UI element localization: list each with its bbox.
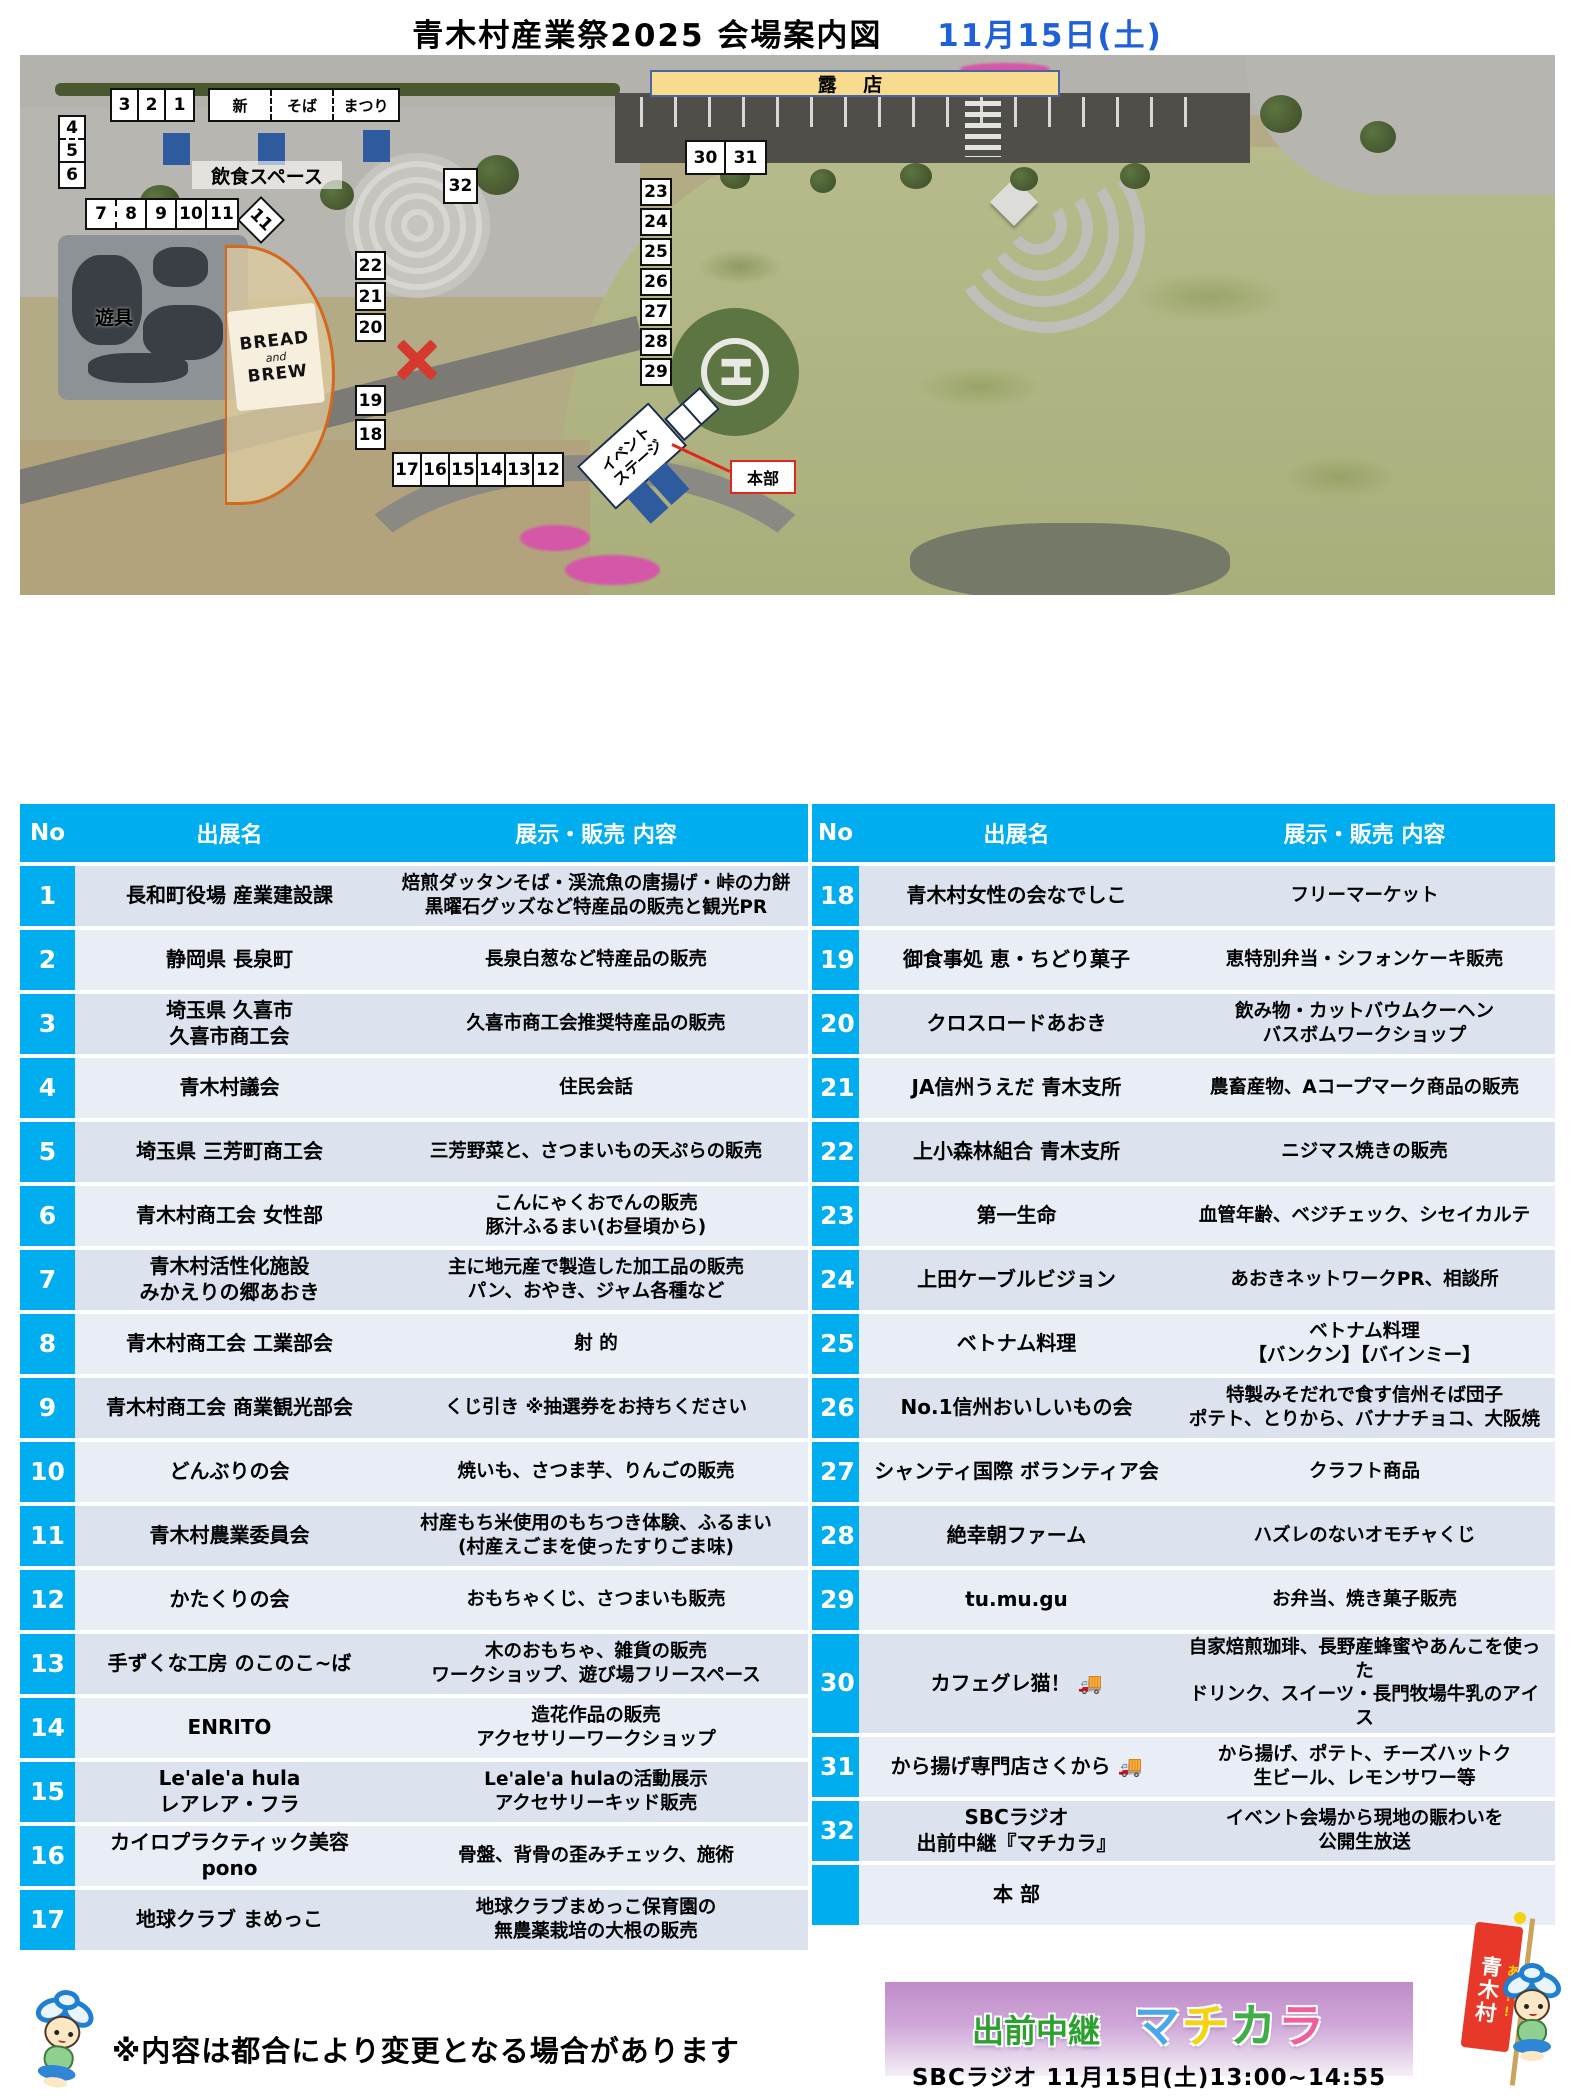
col-header-name: 出展名 [75, 804, 384, 862]
cell-exhibitor-name: 青木村商工会 女性部 [75, 1186, 384, 1246]
cell-exhibit-content: 焼いも、さつま芋、りんごの販売 [384, 1442, 808, 1502]
cell-booth-number: 26 [812, 1378, 859, 1438]
cell-exhibitor-name: 手ずくな工房 のこのこ~ば [75, 1634, 384, 1694]
cell-exhibitor-name: 静岡県 長泉町 [75, 930, 384, 990]
table-row: 21JA信州うえだ 青木支所農畜産物、Aコープマーク商品の販売 [812, 1058, 1555, 1118]
heliport-mark: H [701, 338, 769, 406]
cell-exhibit-content: 特製みそだれで食す信州そば団子 ポテト、とりから、バナナチョコ、大阪焼 [1174, 1378, 1555, 1438]
banner-title: マチカラ [1134, 1990, 1326, 2056]
cell-exhibitor-name: 青木村議会 [75, 1058, 384, 1118]
cell-booth-number: 23 [812, 1186, 859, 1246]
cell-exhibitor-name: シャンティ国際 ボランティア会 [859, 1442, 1174, 1502]
cell-booth-number: 30 [812, 1634, 859, 1733]
flower-patch [520, 525, 590, 551]
cell-exhibit-content: お弁当、焼き菓子販売 [1174, 1570, 1555, 1630]
cell-booth-number: 25 [812, 1314, 859, 1374]
cell-exhibitor-name: tu.mu.gu [859, 1570, 1174, 1630]
table-row: 28絶幸朝ファームハズレのないオモチャくじ [812, 1506, 1555, 1566]
cell-exhibit-content: こんにゃくおでんの販売 豚汁ふるまい(お昼頃から) [384, 1186, 808, 1246]
table-row: 2静岡県 長泉町長泉白葱など特産品の販売 [20, 930, 808, 990]
cell-booth-number: 24 [812, 1250, 859, 1310]
cell-booth-number: 16 [20, 1826, 75, 1886]
cell-exhibitor-name: No.1信州おいしいもの会 [859, 1378, 1174, 1438]
table-row: 15Le'ale'a hula レアレア・フラLe'ale'a hulaの活動展… [20, 1762, 808, 1822]
table-row: 18青木村女性の会なでしこフリーマーケット [812, 866, 1555, 926]
cell-exhibit-content: くじ引き ※抽選券をお持ちください [384, 1378, 808, 1438]
booth-col-4-5-6: 4 5 6 [58, 115, 86, 189]
table-row: 23第一生命血管年齢、ベジチェック、シセイカルテ [812, 1186, 1555, 1246]
cell-booth-number: 20 [812, 994, 859, 1054]
cell-booth-number: 6 [20, 1186, 75, 1246]
tree [1010, 167, 1038, 191]
col-header-content: 展示・販売 内容 [1174, 804, 1555, 862]
cell-booth-number: 28 [812, 1506, 859, 1566]
cell-exhibitor-name: クロスロードあおき [859, 994, 1174, 1054]
cell-booth-number: 32 [812, 1801, 859, 1861]
cell-exhibitor-name: Le'ale'a hula レアレア・フラ [75, 1762, 384, 1822]
cell-booth-number: 9 [20, 1378, 75, 1438]
cell-exhibitor-name: JA信州うえだ 青木支所 [859, 1058, 1174, 1118]
cell-booth-number: 21 [812, 1058, 859, 1118]
amphitheater [995, 183, 1225, 413]
cell-booth-number: 8 [20, 1314, 75, 1374]
tree [1260, 95, 1302, 133]
table-row: 24上田ケーブルビジョンあおきネットワークPR、相談所 [812, 1250, 1555, 1310]
table-row: 4青木村議会住民会話 [20, 1058, 808, 1118]
cell-booth-number: 31 [812, 1737, 859, 1797]
cell-exhibit-content: 飲み物・カットバウムクーヘン バスボムワークショップ [1174, 994, 1555, 1054]
table-row: 12かたくりの会おもちゃくじ、さつまいも販売 [20, 1570, 808, 1630]
cell-booth-number: 29 [812, 1570, 859, 1630]
table-row: 11青木村農業委員会村産もち米使用のもちつき体験、ふるまい (村産えごまを使った… [20, 1506, 808, 1566]
cell-exhibitor-name: から揚げ専門店さくから 🚚 [859, 1737, 1174, 1797]
cell-exhibit-content: フリーマーケット [1174, 866, 1555, 926]
headquarters-box: 本部 [730, 460, 796, 494]
cell-exhibit-content: 農畜産物、Aコープマーク商品の販売 [1174, 1058, 1555, 1118]
cell-booth-number: 2 [20, 930, 75, 990]
venue-map: H 3 2 1 新 そば まつり [20, 55, 1555, 595]
cell-exhibit-content: 久喜市商工会推奨特産品の販売 [384, 994, 808, 1054]
cell-booth-number [812, 1865, 859, 1925]
page-title: 青木村産業祭2025 会場案内図 11月15日(土) [0, 10, 1575, 55]
cell-booth-number: 4 [20, 1058, 75, 1118]
radio-banner: 出前中継 マチカラ SBCラジオ 11月15日(土)13:00~14:55 [885, 1982, 1413, 2076]
cell-booth-number: 1 [20, 866, 75, 926]
cell-exhibitor-name: カフェグレ猫！ 🚚 [859, 1634, 1174, 1733]
tent-marker [163, 133, 190, 165]
cell-booth-number: 5 [20, 1122, 75, 1182]
tree [475, 155, 519, 195]
cell-exhibit-content: 自家焙煎珈琲、長野産蜂蜜やあんこを使った ドリンク、スイーツ・長門牧場牛乳のアイ… [1174, 1634, 1555, 1733]
roten-banner: 露 店 [650, 70, 1060, 97]
flower-patch [565, 555, 660, 585]
table-row: 26No.1信州おいしいもの会特製みそだれで食す信州そば団子 ポテト、とりから、… [812, 1378, 1555, 1438]
pond [910, 523, 1230, 595]
table-row: 7青木村活性化施設 みかえりの郷あおき主に地元産で製造した加工品の販売 パン、お… [20, 1250, 808, 1310]
cell-exhibitor-name: 絶幸朝ファーム [859, 1506, 1174, 1566]
cell-exhibitor-name: 青木村活性化施設 みかえりの郷あおき [75, 1250, 384, 1310]
table-row: 16カイロプラクティック美容 pono骨盤、背骨の歪みチェック、施術 [20, 1826, 808, 1886]
col-header-name: 出展名 [859, 804, 1174, 862]
banner-subtitle: SBCラジオ 11月15日(土)13:00~14:55 [885, 2058, 1413, 2092]
cell-exhibit-content: 長泉白葱など特産品の販売 [384, 930, 808, 990]
tree [900, 163, 932, 189]
booth-row-17-12: 17 16 15 14 13 12 [392, 452, 564, 487]
cell-exhibit-content: ニジマス焼きの販売 [1174, 1122, 1555, 1182]
cell-exhibit-content: 村産もち米使用のもちつき体験、ふるまい (村産えごまを使ったすりごま味) [384, 1506, 808, 1566]
table-row: 13手ずくな工房 のこのこ~ば木のおもちゃ、雑貨の販売 ワークショップ、遊び場フ… [20, 1634, 808, 1694]
cell-exhibitor-name: 第一生命 [859, 1186, 1174, 1246]
cell-booth-number: 11 [20, 1506, 75, 1566]
cell-booth-number: 18 [812, 866, 859, 926]
cell-exhibit-content: クラフト商品 [1174, 1442, 1555, 1502]
cell-exhibit-content: 射 的 [384, 1314, 808, 1374]
cell-exhibitor-name: 埼玉県 三芳町商工会 [75, 1122, 384, 1182]
table-header-row: No 出展名 展示・販売 内容 [812, 804, 1555, 862]
event-date: 11月15日(土) [937, 18, 1163, 54]
banner-label: 出前中継 [972, 2006, 1100, 2052]
booth-shin-soba-matsuri: 新 そば まつり [208, 88, 400, 122]
cell-booth-number: 13 [20, 1634, 75, 1694]
table-row: 31から揚げ専門店さくから 🚚から揚げ、ポテト、チーズハットク 生ビール、レモン… [812, 1737, 1555, 1797]
table-row: 20クロスロードあおき飲み物・カットバウムクーヘン バスボムワークショップ [812, 994, 1555, 1054]
cell-booth-number: 7 [20, 1250, 75, 1310]
booth-col-23-29: 23 24 25 26 27 28 29 [640, 178, 672, 386]
cell-exhibitor-name: 青木村商工会 商業観光部会 [75, 1378, 384, 1438]
eating-space-label: 飲食スペース [192, 161, 342, 189]
table-row: 6青木村商工会 女性部こんにゃくおでんの販売 豚汁ふるまい(お昼頃から) [20, 1186, 808, 1246]
cell-exhibitor-name: 上小森林組合 青木支所 [859, 1122, 1174, 1182]
table-header-row: No 出展名 展示・販売 内容 [20, 804, 808, 862]
booth-row-3-2-1: 3 2 1 [110, 88, 195, 122]
exhibitor-table-right: No 出展名 展示・販売 内容 18青木村女性の会なでしこフリーマーケット19御… [812, 800, 1555, 1929]
cell-exhibit-content: から揚げ、ポテト、チーズハットク 生ビール、レモンサワー等 [1174, 1737, 1555, 1797]
cell-booth-number: 3 [20, 994, 75, 1054]
cell-booth-number: 27 [812, 1442, 859, 1502]
cell-exhibitor-name: ベトナム料理 [859, 1314, 1174, 1374]
tree [1120, 163, 1150, 189]
cell-booth-number: 10 [20, 1442, 75, 1502]
table-row: 5埼玉県 三芳町商工会三芳野菜と、さつまいもの天ぷらの販売 [20, 1122, 808, 1182]
tree [1360, 121, 1396, 153]
cell-exhibit-content: 造花作品の販売 アクセサリーワークショップ [384, 1698, 808, 1758]
cell-exhibit-content: 主に地元産で製造した加工品の販売 パン、おやき、ジャム各種など [384, 1250, 808, 1310]
col-header-content: 展示・販売 内容 [384, 804, 808, 862]
exhibitor-table-left: No 出展名 展示・販売 内容 1長和町役場 産業建設課焙煎ダッタンそば・渓流魚… [20, 800, 808, 1954]
table-row: 25ベトナム料理ベトナム料理 【バンクン】【バインミー】 [812, 1314, 1555, 1374]
cell-exhibitor-name: ENRITO [75, 1698, 384, 1758]
cell-exhibitor-name: SBCラジオ 出前中継『マチカラ』 [859, 1801, 1174, 1861]
cell-exhibitor-name: 青木村農業委員会 [75, 1506, 384, 1566]
booth-col-22-20: 22 21 20 [355, 251, 386, 342]
cell-exhibit-content: Le'ale'a hulaの活動展示 アクセサリーキッド販売 [384, 1762, 808, 1822]
cell-exhibit-content: ベトナム料理 【バンクン】【バインミー】 [1174, 1314, 1555, 1374]
mascot-with-flag: あっ!! 青木村 [1402, 1912, 1572, 2092]
table-row: 17地球クラブ まめっこ地球クラブまめっこ保育園の 無農薬栽培の大根の販売 [20, 1890, 808, 1950]
disclaimer-note: ※内容は都合により変更となる場合があります [112, 2028, 740, 2070]
cell-exhibit-content: おもちゃくじ、さつまいも販売 [384, 1570, 808, 1630]
table-row: 22上小森林組合 青木支所ニジマス焼きの販売 [812, 1122, 1555, 1182]
cell-booth-number: 15 [20, 1762, 75, 1822]
tent-marker [363, 130, 390, 162]
cell-exhibitor-name: 青木村女性の会なでしこ [859, 866, 1174, 926]
table-row: 3埼玉県 久喜市 久喜市商工会久喜市商工会推奨特産品の販売 [20, 994, 808, 1054]
cell-booth-number: 22 [812, 1122, 859, 1182]
cell-exhibitor-name: カイロプラクティック美容 pono [75, 1826, 384, 1886]
table-row: 9青木村商工会 商業観光部会くじ引き ※抽選券をお持ちください [20, 1378, 808, 1438]
table-row: 10どんぶりの会焼いも、さつま芋、りんごの販売 [20, 1442, 808, 1502]
cell-exhibitor-name: 上田ケーブルビジョン [859, 1250, 1174, 1310]
cell-exhibit-content: 住民会話 [384, 1058, 808, 1118]
cell-exhibit-content: あおきネットワークPR、相談所 [1174, 1250, 1555, 1310]
cell-exhibit-content: 血管年齢、ベジチェック、シセイカルテ [1174, 1186, 1555, 1246]
cell-exhibitor-name: 御食事処 恵・ちどり菓子 [859, 930, 1174, 990]
cell-exhibit-content: 恵特別弁当・シフォンケーキ販売 [1174, 930, 1555, 990]
cell-exhibit-content: 骨盤、背骨の歪みチェック、施術 [384, 1826, 808, 1886]
cell-exhibitor-name: 長和町役場 産業建設課 [75, 866, 384, 926]
col-header-no: No [812, 804, 859, 862]
event-title: 青木村産業祭2025 会場案内図 [412, 18, 882, 54]
cell-exhibitor-name: かたくりの会 [75, 1570, 384, 1630]
col-header-no: No [20, 804, 75, 862]
cell-booth-number: 14 [20, 1698, 75, 1758]
table-row: 8青木村商工会 工業部会射 的 [20, 1314, 808, 1374]
booth-row-30-31: 30 31 [685, 140, 767, 175]
tree [810, 169, 836, 193]
cell-booth-number: 19 [812, 930, 859, 990]
cell-exhibitor-name: 埼玉県 久喜市 久喜市商工会 [75, 994, 384, 1054]
cell-exhibit-content: ハズレのないオモチャくじ [1174, 1506, 1555, 1566]
playground-area [58, 235, 248, 400]
cell-booth-number: 12 [20, 1570, 75, 1630]
table-row: 27シャンティ国際 ボランティア会クラフト商品 [812, 1442, 1555, 1502]
bread-and-brew-sign: BREAD and BREW [227, 303, 325, 412]
playground-label: 遊具 [95, 303, 133, 330]
cell-exhibit-content: 地球クラブまめっこ保育園の 無農薬栽培の大根の販売 [384, 1890, 808, 1950]
cell-exhibitor-name: 本 部 [859, 1865, 1174, 1925]
table-row: 1長和町役場 産業建設課焙煎ダッタンそば・渓流魚の唐揚げ・峠の力餅 黒曜石グッズ… [20, 866, 808, 926]
cell-exhibitor-name: どんぶりの会 [75, 1442, 384, 1502]
cell-exhibit-content: 焙煎ダッタンそば・渓流魚の唐揚げ・峠の力餅 黒曜石グッズなど特産品の販売と観光P… [384, 866, 808, 926]
cell-exhibitor-name: 地球クラブ まめっこ [75, 1890, 384, 1950]
cell-booth-number: 17 [20, 1890, 75, 1950]
cell-exhibit-content: 三芳野菜と、さつまいもの天ぷらの販売 [384, 1122, 808, 1182]
booth-32: 32 [443, 168, 478, 204]
flyer-page: 青木村産業祭2025 会場案内図 11月15日(土) [0, 0, 1575, 2100]
table-row: 14ENRITO造花作品の販売 アクセサリーワークショップ [20, 1698, 808, 1758]
table-row: 30カフェグレ猫！ 🚚自家焙煎珈琲、長野産蜂蜜やあんこを使った ドリンク、スイー… [812, 1634, 1555, 1733]
booth-row-7-11: 7 8 9 10 11 [85, 198, 239, 230]
parking-stall-lines [640, 97, 1200, 127]
table-row: 32SBCラジオ 出前中継『マチカラ』イベント会場から現地の賑わいを 公開生放送 [812, 1801, 1555, 1861]
cell-exhibit-content: イベント会場から現地の賑わいを 公開生放送 [1174, 1801, 1555, 1861]
table-row: 19御食事処 恵・ちどり菓子恵特別弁当・シフォンケーキ販売 [812, 930, 1555, 990]
cell-exhibitor-name: 青木村商工会 工業部会 [75, 1314, 384, 1374]
cell-exhibit-content: 木のおもちゃ、雑貨の販売 ワークショップ、遊び場フリースペース [384, 1634, 808, 1694]
table-row: 29tu.mu.guお弁当、焼き菓子販売 [812, 1570, 1555, 1630]
booth-col-19-18: 19 18 [355, 385, 386, 450]
